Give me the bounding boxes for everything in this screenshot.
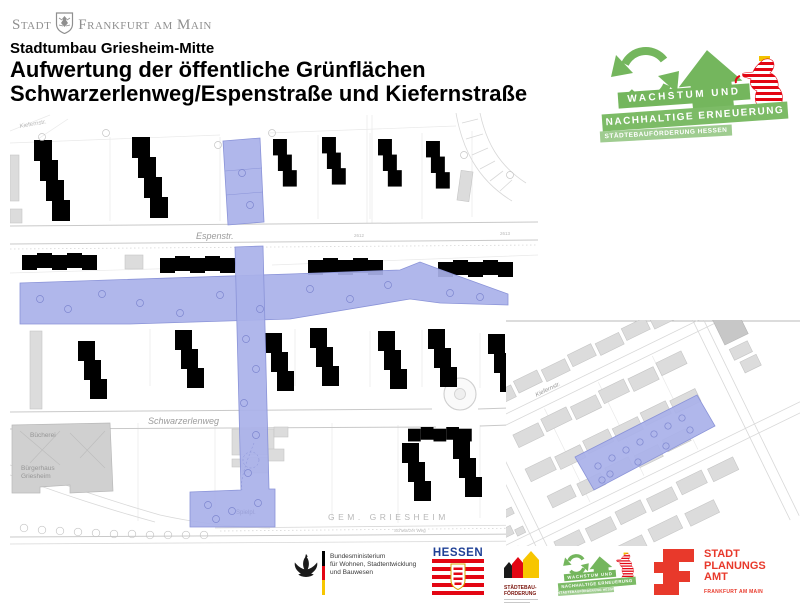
hessen-wordmark: HESSEN: [430, 547, 486, 559]
city-logo-name: Frankfurt am Main: [78, 17, 212, 34]
inset-map: Kiefernstr.: [506, 320, 800, 546]
buergerhaus-building: [12, 423, 113, 493]
label-parcel-2612: 2612: [354, 233, 365, 238]
stpl-text-1: STADT: [704, 549, 766, 561]
stadtplanungsamt-f-icon: [654, 549, 696, 595]
bund-text-3: und Bauwesen: [330, 569, 416, 577]
federal-eagle-icon: [294, 551, 318, 579]
slide-title-line2: Schwarzerlenweg/Espenstraße und Kieferns…: [10, 81, 527, 107]
hessen-flag-icon: [432, 559, 484, 595]
label-buergerhaus-1: Bürgerhaus: [21, 465, 55, 472]
highlight-area-espenstrasse-north: [223, 138, 264, 225]
bund-text-2: für Wohnen, Stadtentwicklung: [330, 561, 416, 569]
label-buergerhaus-2: Griesheim: [21, 473, 51, 480]
label-gemarkung-griesheim: GEM. GRIESHEIM: [328, 512, 449, 522]
german-flag-stripe: [322, 551, 325, 595]
three-houses-icon: [504, 551, 540, 578]
sbf-text-2: FÖRDERUNG: [504, 591, 550, 597]
stpl-text-sub: FRANKFURT AM MAIN: [704, 589, 766, 595]
slide: { "header": { "city_logo_prefix": "Stadt…: [0, 0, 800, 600]
label-parcel-2613: 2613: [500, 231, 511, 236]
staedtebaufoerderung-logo: STÄDTEBAU- FÖRDERUNG: [504, 551, 550, 603]
city-logo: Stadt Frankfurt am Main: [12, 12, 212, 39]
slide-subtitle: Stadtumbau Griesheim-Mitte: [10, 40, 214, 57]
main-map: Kiefernstr. Espenstr. Schwarzerlenweg GE…: [10, 113, 538, 545]
city-logo-prefix: Stadt: [12, 17, 51, 34]
bund-ministry-logo: Bundesministerium für Wohnen, Stadtentwi…: [294, 551, 416, 595]
street-label-espenstr: Espenstr.: [196, 231, 234, 241]
street-label-schwarzer-weg: Schwarzer Weg: [394, 528, 426, 533]
frankfurt-crest-icon: [55, 12, 74, 39]
label-spielplatz: Spielpl.: [236, 510, 256, 516]
hessen-logo: HESSEN: [430, 547, 486, 600]
bund-text-1: Bundesministerium: [330, 553, 416, 561]
program-logo: WACHSTUM UND NACHHALTIGE ERNEUERUNG STÄD…: [598, 30, 798, 142]
stpl-text-3: AMT: [704, 572, 766, 584]
slide-title-line1: Aufwertung der öffentliche Grünflächen: [10, 57, 426, 83]
program-logo-small: WACHSTUM UND NACHHALTIGE ERNEUERUNG STÄD…: [556, 549, 644, 597]
street-label-schwarzerlenweg: Schwarzerlenweg: [148, 416, 219, 426]
label-buecherei: Bücherei: [30, 432, 56, 439]
stadtplanungsamt-logo: STADT PLANUNGS AMT FRANKFURT AM MAIN: [654, 549, 766, 595]
